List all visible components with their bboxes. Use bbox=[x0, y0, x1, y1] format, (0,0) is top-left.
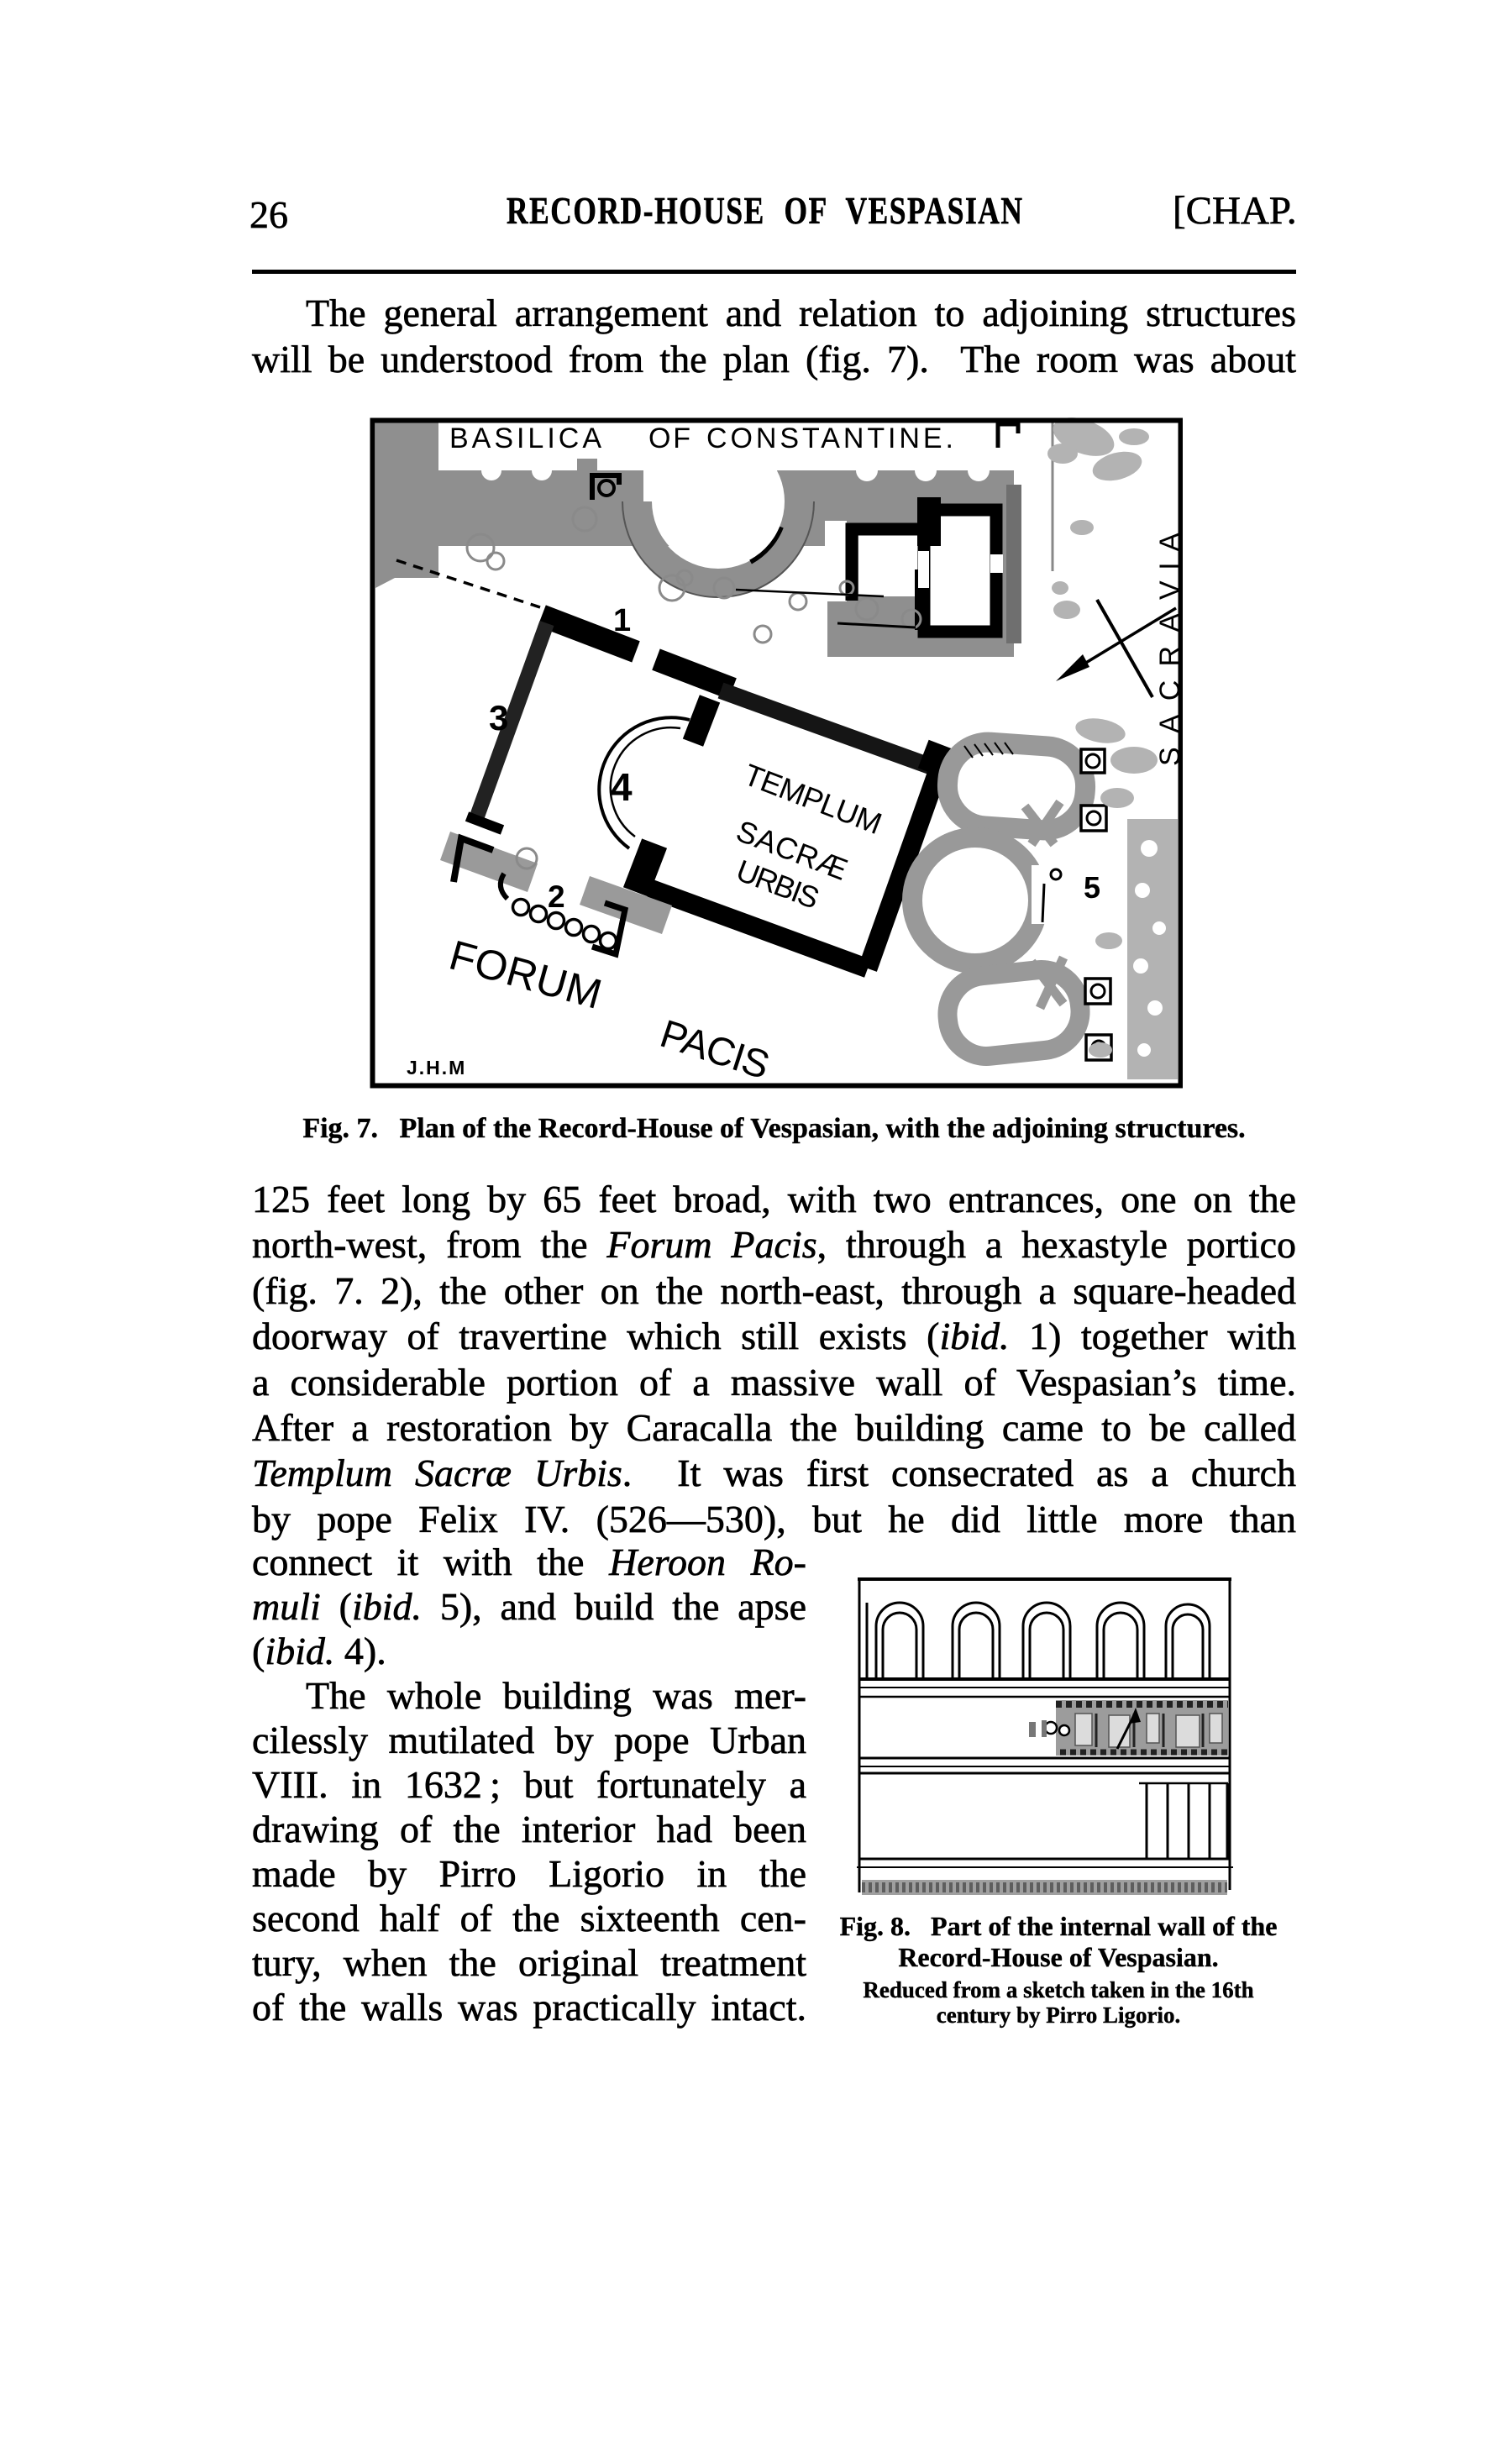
svg-text:1: 1 bbox=[613, 603, 631, 638]
svg-text:VIA: VIA bbox=[1154, 533, 1183, 600]
svg-text:4: 4 bbox=[611, 765, 633, 809]
svg-text:2: 2 bbox=[548, 879, 565, 914]
svg-text:BASILICA: BASILICA bbox=[449, 423, 601, 454]
svg-text:J.H.M: J.H.M bbox=[407, 1057, 466, 1079]
svg-text:5: 5 bbox=[1084, 870, 1100, 905]
svg-text:FORUM: FORUM bbox=[444, 932, 606, 1018]
svg-text:3: 3 bbox=[489, 698, 508, 737]
svg-text:OF: OF bbox=[648, 423, 690, 454]
svg-text:CONSTANTINE.: CONSTANTINE. bbox=[706, 423, 953, 454]
svg-text:PACIS: PACIS bbox=[655, 1010, 775, 1088]
